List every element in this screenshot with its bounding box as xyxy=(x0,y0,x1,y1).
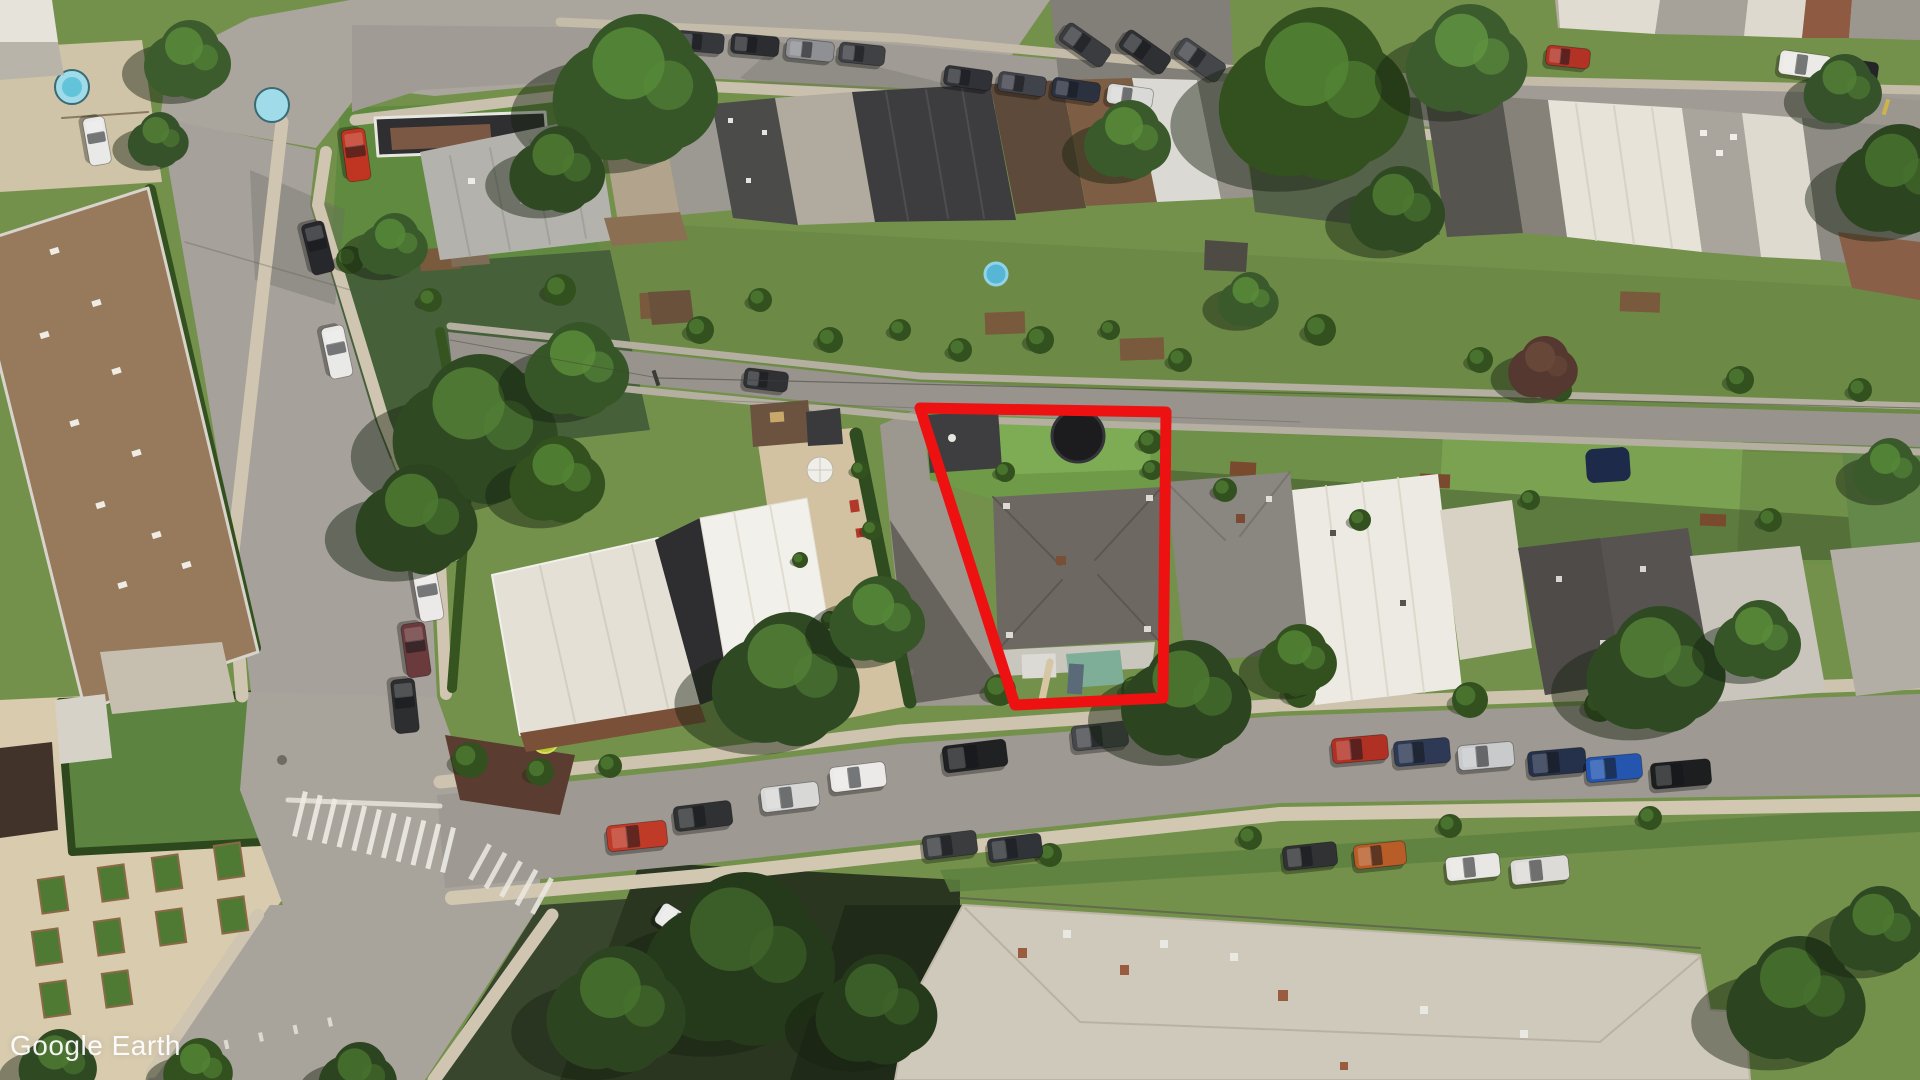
aerial-imagery[interactable] xyxy=(0,0,1920,1080)
watermark-google-earth: Google Earth xyxy=(10,1030,181,1062)
google-earth-viewport[interactable]: Google Earth xyxy=(0,0,1920,1080)
